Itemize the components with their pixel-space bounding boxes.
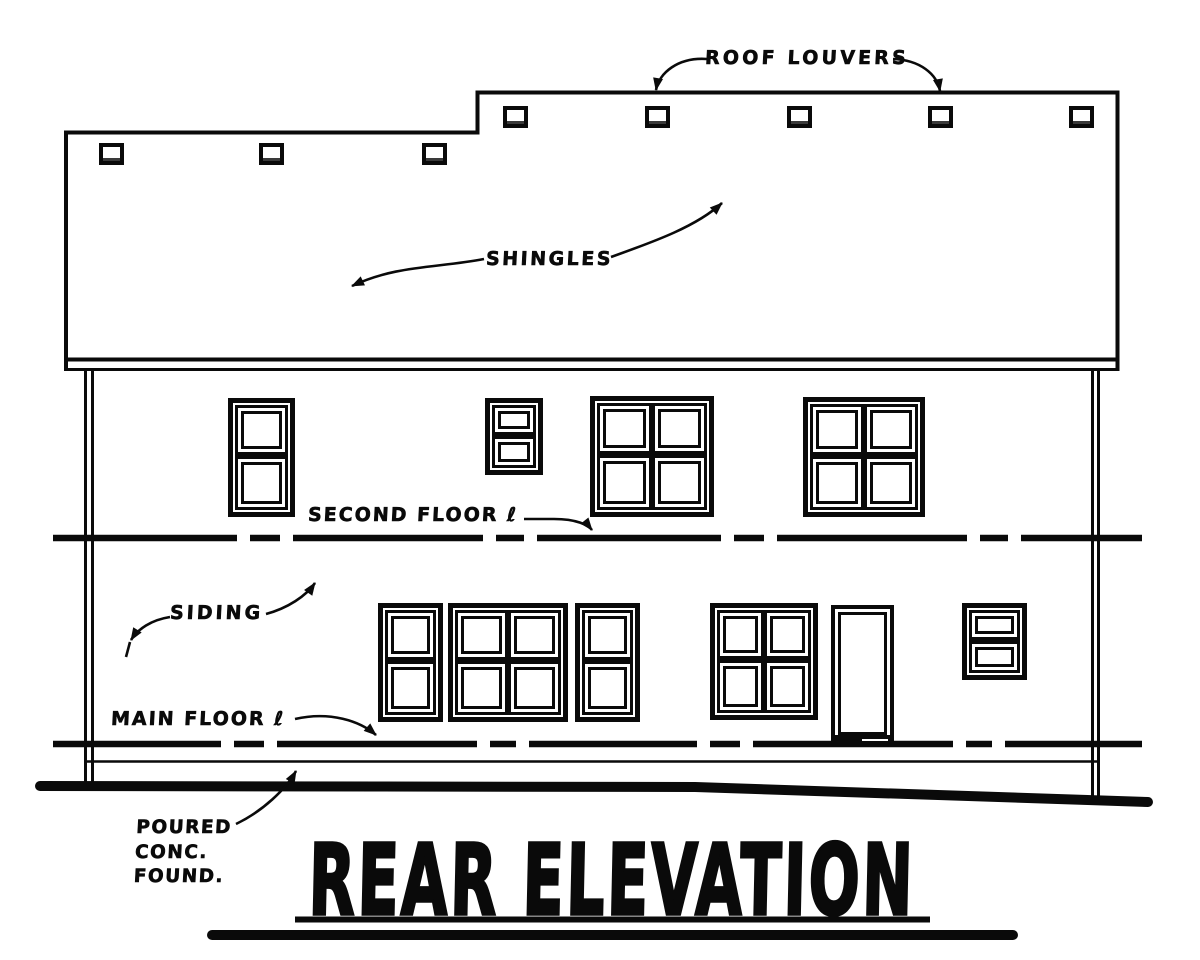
window-pane — [238, 459, 285, 507]
window-pane — [867, 459, 915, 507]
siding-leader-tail — [126, 642, 130, 657]
door-threshold — [832, 735, 893, 745]
siding-label: SIDING — [169, 603, 263, 624]
roof-louver — [259, 143, 284, 165]
louver-slat — [932, 121, 949, 124]
foundation-label-line: CONC. — [134, 841, 231, 866]
window-pane — [813, 407, 861, 452]
window-pane — [495, 439, 533, 465]
louver-slat — [649, 121, 666, 124]
louver-slat — [263, 158, 280, 161]
louver-slat — [1073, 121, 1090, 124]
louver-slat — [507, 121, 524, 124]
roof-outline — [66, 93, 1118, 372]
shingles-leader-right — [611, 203, 722, 257]
roof-louver — [787, 106, 812, 128]
main-floor-label: MAIN FLOOR ℓ — [110, 709, 285, 730]
window-pane — [767, 613, 808, 656]
window-pane — [600, 406, 649, 451]
roof-louver — [503, 106, 528, 128]
roof-louver — [928, 106, 953, 128]
second-floor-label: SECOND FLOOR ℓ — [307, 505, 518, 526]
roof-louvers-label: ROOF LOUVERS — [704, 48, 909, 69]
main-floor-leader — [295, 716, 376, 735]
siding-leader-up — [266, 583, 315, 614]
door-panel — [838, 612, 887, 735]
window-pane — [458, 613, 505, 657]
window-sash — [969, 610, 1020, 673]
window-pane — [767, 663, 808, 710]
window-second-floor-small — [485, 398, 543, 475]
louver-slat — [426, 158, 443, 161]
window-main-floor-small — [962, 603, 1027, 680]
window-main-floor-band-center — [448, 603, 568, 722]
window-sash — [810, 404, 918, 510]
window-pane — [720, 663, 761, 710]
window-sash — [385, 610, 436, 715]
window-pane — [495, 408, 533, 432]
window-pane — [655, 458, 704, 507]
window-sash — [582, 610, 633, 715]
rear-door — [831, 605, 894, 742]
window-second-floor-tall — [228, 398, 295, 517]
window-pane — [585, 613, 630, 657]
window-main-floor-band-left — [378, 603, 443, 722]
window-pane — [238, 408, 285, 452]
window-pane — [511, 664, 558, 712]
window-sash — [597, 403, 707, 510]
roof-louver — [422, 143, 447, 165]
foundation-label: POURED CONC. FOUND. — [133, 816, 232, 890]
window-sash — [717, 610, 811, 713]
rear-elevation-drawing: ROOF LOUVERS SHINGLES SECOND FLOOR ℓ SID… — [0, 0, 1200, 960]
window-pane — [388, 664, 433, 712]
window-pane — [972, 613, 1017, 637]
window-pane — [458, 664, 505, 712]
roof-louver — [99, 143, 124, 165]
shingles-leader-left — [352, 259, 484, 286]
window-pane — [585, 664, 630, 712]
roof-louver — [1069, 106, 1094, 128]
window-sash — [235, 405, 288, 510]
window-pane — [511, 613, 558, 657]
foundation-label-line: POURED — [136, 816, 233, 841]
window-pane — [867, 407, 915, 452]
louver-slat — [103, 158, 120, 161]
window-main-floor-band-right — [575, 603, 640, 722]
window-pane — [972, 644, 1017, 670]
window-main-floor-2x2 — [710, 603, 818, 720]
window-second-floor-left-2x2 — [590, 396, 714, 517]
window-pane — [600, 458, 649, 507]
threshold-step — [862, 739, 888, 741]
window-sash — [492, 405, 536, 468]
drawing-title: REAR ELEVATION — [308, 833, 916, 931]
window-sash — [455, 610, 561, 715]
window-pane — [720, 613, 761, 656]
window-second-floor-right-2x2 — [803, 397, 925, 517]
siding-leader-down — [131, 617, 170, 640]
louver-slat — [791, 121, 808, 124]
window-pane — [813, 459, 861, 507]
foundation-label-line: FOUND. — [133, 865, 230, 890]
roof-louvers-leader-left — [656, 59, 707, 90]
roof-louver — [645, 106, 670, 128]
foundation-leader — [236, 771, 296, 824]
window-pane — [388, 613, 433, 657]
second-floor-leader — [524, 519, 592, 530]
window-pane — [655, 406, 704, 451]
grade-line — [40, 786, 1148, 802]
shingles-label: SHINGLES — [485, 249, 613, 270]
